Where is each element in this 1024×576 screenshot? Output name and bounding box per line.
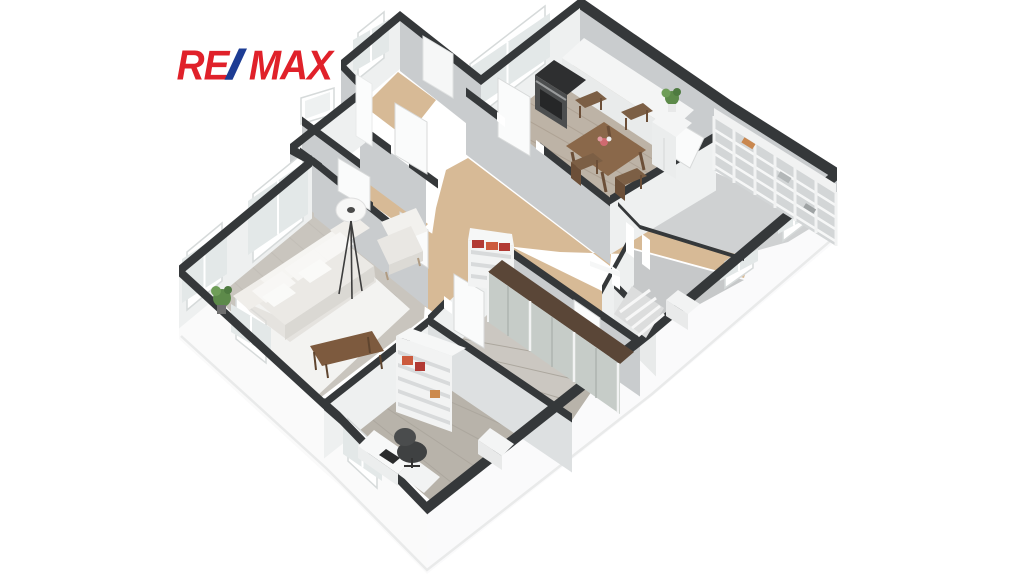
- svg-text:MAX: MAX: [249, 41, 335, 89]
- svg-text:RE: RE: [177, 41, 231, 89]
